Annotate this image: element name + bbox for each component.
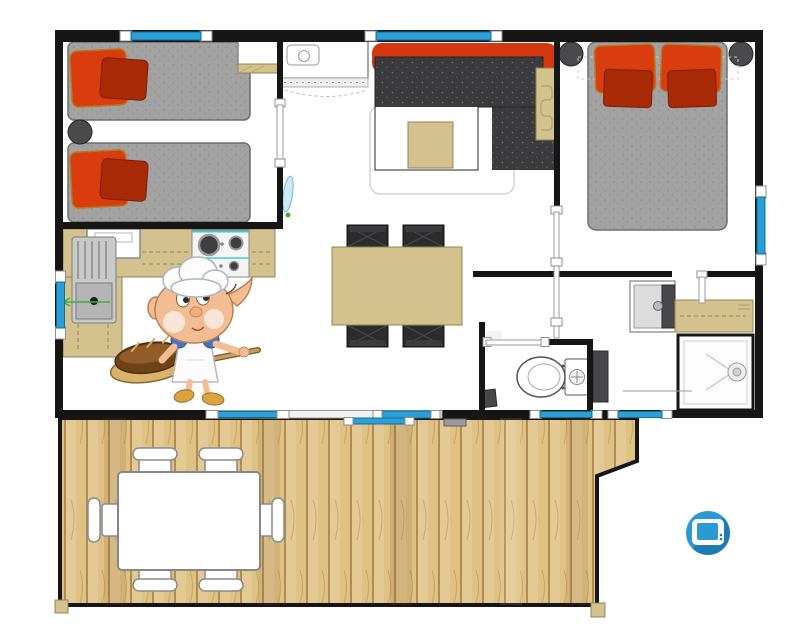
deck-post (55, 600, 68, 613)
bedroom-door (277, 105, 283, 161)
pillow (667, 69, 716, 108)
dining-chair (347, 225, 388, 248)
window (57, 282, 65, 328)
wardrobe (238, 38, 278, 65)
storage-unit (593, 351, 608, 402)
door-step (444, 419, 466, 426)
floor-plan-canvas (0, 0, 800, 634)
outdoor-table (118, 472, 260, 570)
round-nightstand (559, 42, 583, 66)
washbasin (630, 281, 675, 332)
floor-plan (0, 0, 800, 634)
dining-chair (347, 324, 388, 347)
dining-chair (403, 225, 444, 248)
deck-post (591, 603, 605, 617)
toilet (517, 357, 588, 397)
window (540, 412, 592, 418)
dining-chair (403, 324, 444, 347)
round-nightstand (68, 120, 92, 144)
side-console (536, 68, 557, 140)
bedroom-double (559, 42, 753, 230)
sliding-window (218, 412, 277, 418)
wc-door (486, 340, 544, 345)
window (376, 32, 491, 40)
pillow (603, 69, 652, 108)
pillow (100, 158, 149, 201)
tv-screen (697, 523, 718, 540)
round-nightstand (729, 42, 753, 66)
terrace (55, 418, 637, 617)
window (131, 32, 201, 40)
shower (678, 335, 753, 410)
bathroom-door (699, 277, 705, 303)
dining-table (332, 247, 462, 325)
window (757, 197, 765, 254)
window (618, 412, 662, 418)
pillow (100, 57, 149, 100)
sliding-door-leaf (380, 411, 432, 418)
sliding-door-leaf-open (352, 418, 406, 424)
coffee-table (408, 122, 453, 168)
